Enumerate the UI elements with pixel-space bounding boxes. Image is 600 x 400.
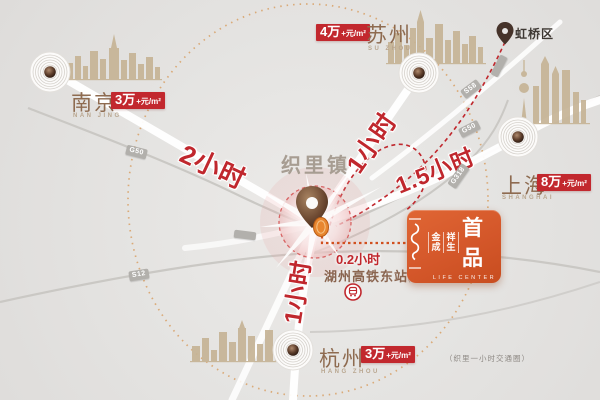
- brand-monogram-icon: [407, 216, 423, 277]
- project-logo-card: 金 成 祥 生 首品 LIFE CENTER: [407, 210, 501, 283]
- project-logo-inner: 金 成 祥 生 首品 LIFE CENTER: [407, 212, 501, 281]
- nanjing-marker-icon: [30, 52, 70, 92]
- railway-station-icon: [345, 284, 361, 300]
- hangzhou-price-unit: +元/m²: [386, 350, 411, 361]
- shanghai-skyline: [515, 56, 590, 124]
- hongqiao-district-label: 虹桥区: [515, 25, 554, 42]
- brand-char: 金: [432, 232, 441, 243]
- shanghai-price-unit: +元/m²: [562, 178, 587, 189]
- suzhou-price-value: 4万: [320, 25, 340, 39]
- nanjing-price-value: 3万: [115, 93, 135, 107]
- map-note: （织里一小时交通圈）: [445, 353, 530, 364]
- brand-jincheng: 金 成: [428, 232, 444, 253]
- hongqiao-pin-icon: [497, 22, 514, 45]
- suzhou-marker-icon: [399, 53, 439, 93]
- hangzhou-marker-icon: [273, 330, 313, 370]
- brand-names: 金 成 祥 生: [428, 232, 459, 253]
- nanjing-pinyin: NAN JING: [73, 113, 122, 119]
- suzhou-pinyin: SU ZHOU: [368, 46, 413, 52]
- nanjing-price-tag: 3万 +元/m²: [111, 92, 165, 109]
- transit-map: 织里镇 南京 3万 +元/m² NAN JING 4万 +元/m² 苏州 SU …: [0, 0, 600, 400]
- brand-char: 成: [432, 242, 441, 253]
- project-seal-icon: [314, 218, 329, 237]
- shanghai-marker-icon: [498, 117, 538, 157]
- nanjing-price-unit: +元/m²: [136, 96, 161, 107]
- shanghai-pinyin: SHANGHAI: [502, 195, 554, 201]
- brand-char: 祥: [447, 232, 456, 243]
- product-name: 首品: [462, 212, 501, 272]
- hangzhou-price-tag: 3万 +元/m²: [361, 346, 415, 363]
- suzhou-price-unit: +元/m²: [341, 28, 366, 39]
- brand-char: 生: [447, 242, 456, 253]
- hangzhou-pinyin: HANG ZHOU: [321, 369, 380, 375]
- shanghai-price-value: 8万: [541, 175, 561, 189]
- nanjing-skyline: [64, 34, 162, 80]
- shanghai-price-tag: 8万 +元/m²: [537, 174, 591, 191]
- suzhou-name: 苏州: [366, 19, 412, 49]
- station-name: 湖州高铁东站: [324, 269, 408, 284]
- hangzhou-price-value: 3万: [365, 347, 385, 361]
- logo-subtitle: LIFE CENTER: [433, 275, 496, 281]
- brand-xiangsheng: 祥 生: [444, 232, 459, 253]
- suzhou-price-tag: 4万 +元/m²: [316, 24, 370, 41]
